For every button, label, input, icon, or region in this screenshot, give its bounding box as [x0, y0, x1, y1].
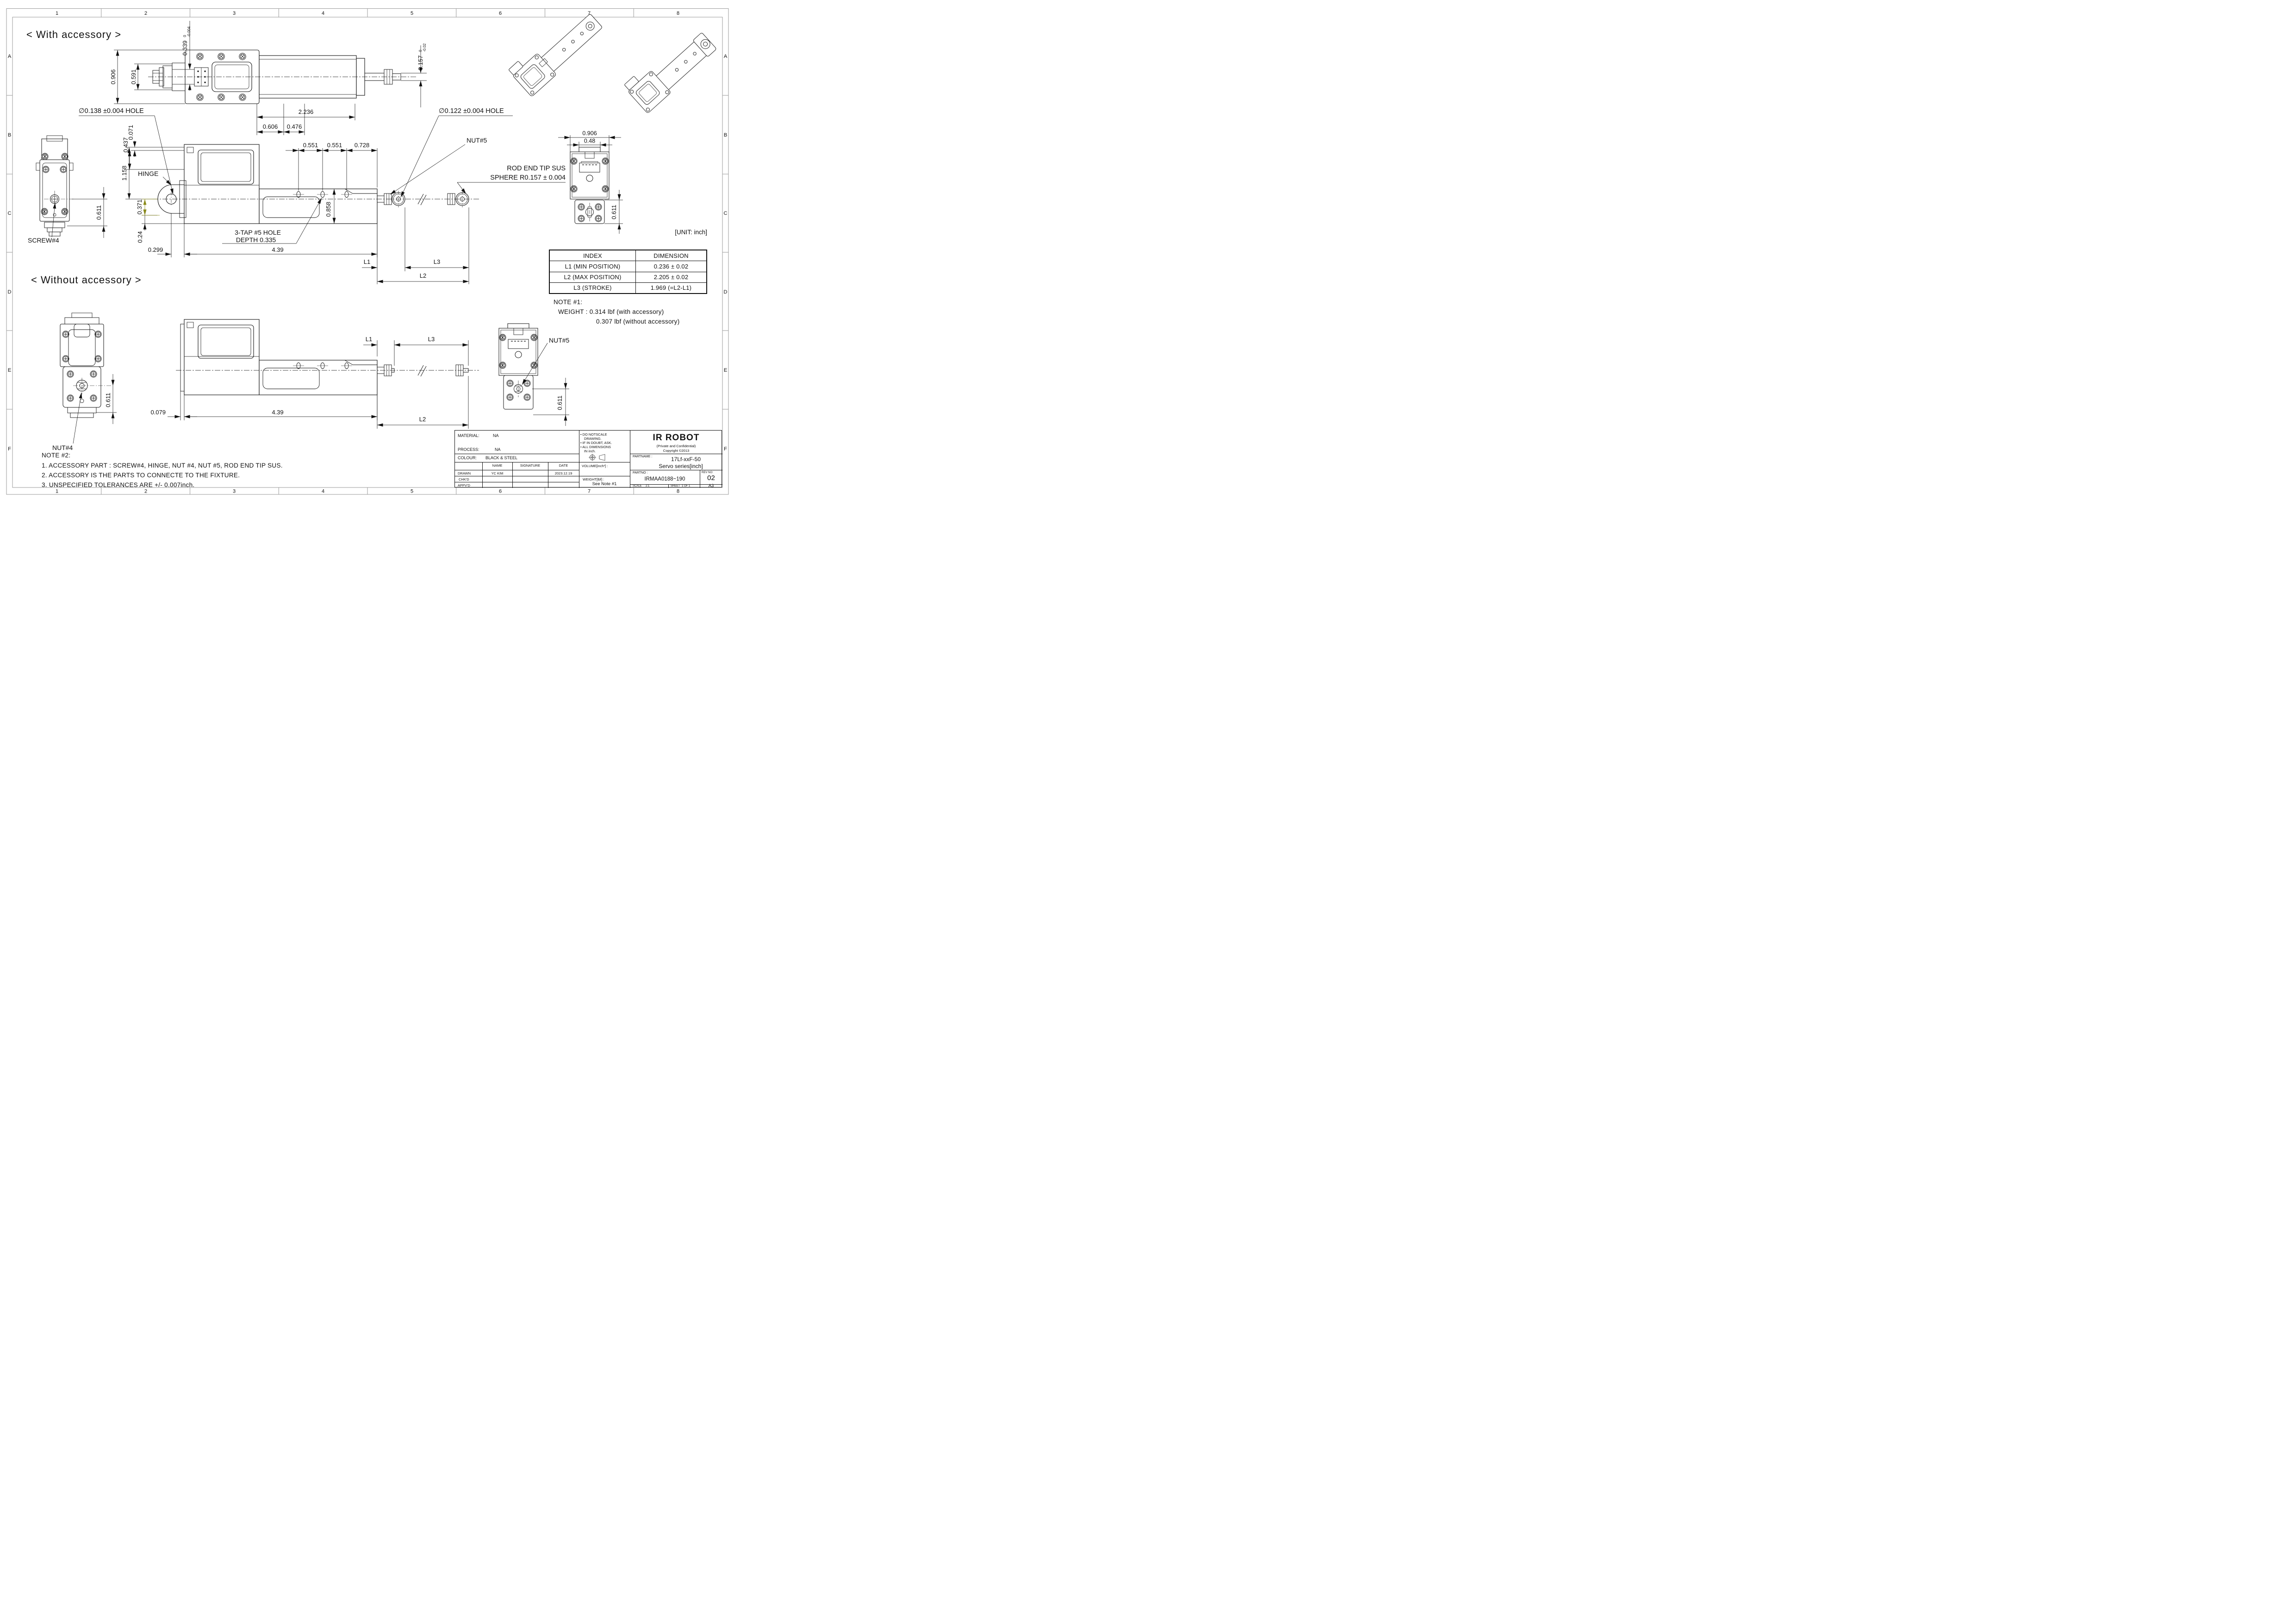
- zone-row-left-C: C: [8, 211, 12, 216]
- zone-col-top-3: 3: [233, 11, 236, 16]
- zone-row-right-A: A: [724, 54, 728, 59]
- dim-0606: 0.606: [263, 123, 278, 130]
- side-view-with-accessory: [153, 144, 479, 224]
- label-rodend-line1: ROD END TIP SUS: [507, 165, 566, 172]
- zone-row-right-D: D: [724, 289, 728, 295]
- note-line: • DO NOTSCALE: [580, 432, 628, 437]
- dim-0339: 0.339: [181, 40, 188, 56]
- index-l3-label: L3 (STROKE): [550, 282, 636, 293]
- copyright-note: Copyright ©2013: [630, 449, 722, 453]
- title-block-notes: • DO NOTSCALE DRAWING. • IF IN DOUBT, AS…: [580, 432, 628, 453]
- label-hole-0138: ∅0.138 ±0.004 HOLE: [79, 107, 144, 115]
- drawn-date: 2023.12.19: [548, 471, 579, 475]
- right-end-view-with-accessory: [570, 147, 609, 224]
- zone-col-bot-3: 3: [233, 489, 236, 494]
- right-end-view-without-accessory: [499, 324, 538, 409]
- zone-col-top-4: 4: [322, 11, 324, 16]
- drawn-label: DRAWN: [458, 471, 471, 475]
- dim-0728: 0.728: [355, 142, 370, 149]
- dim-0157-tol: 0.157 0 -0.02: [417, 43, 427, 70]
- dim-0071: 0.071: [127, 125, 134, 140]
- section-title-with-accessory: < With accessory >: [26, 29, 121, 41]
- drawn-name: YC KIM: [482, 471, 512, 475]
- dim-0157: 0.157: [417, 55, 424, 70]
- dim-0611-left-view: 0.611: [95, 205, 102, 220]
- sheet-label: SHEET: [671, 485, 680, 487]
- partno-label: PARTNO :: [633, 471, 647, 475]
- note-line: • ALL DIMENSIONS: [580, 445, 628, 449]
- dim-L1-top: L1: [364, 258, 370, 265]
- note2-title: NOTE #2:: [42, 452, 70, 459]
- zone-col-bot-7: 7: [588, 489, 591, 494]
- left-end-view-with-accessory: [36, 136, 74, 236]
- partno-value: IRMAA0188~190: [630, 476, 700, 482]
- divider: [455, 482, 579, 482]
- divider: [630, 470, 722, 470]
- note2-line2: 2. ACCESSORY IS THE PARTS TO CONNECTE TO…: [42, 472, 240, 479]
- dim-0611-rear: 0.611: [105, 393, 112, 407]
- note-line: • IF IN DOUBT, ASK.: [580, 441, 628, 445]
- zone-col-bot-1: 1: [56, 489, 58, 494]
- note2-line3: 3. UNSPECIFIED TOLERANCES ARE +/- 0.007i…: [42, 481, 194, 488]
- zone-row-left-A: A: [8, 54, 12, 59]
- rear-view-without-accessory: [60, 313, 111, 418]
- partname-value-line2: Servo series[inch]: [639, 463, 722, 469]
- note1-title: NOTE #1:: [554, 299, 582, 306]
- right-end-view-dim-labels: 0.906 0.48 0.611: [582, 130, 617, 219]
- scale-value: 2:1: [646, 485, 649, 487]
- sheet-value: 1 OF 1: [682, 485, 690, 487]
- weight-value: See Note #1: [579, 481, 630, 487]
- divider: [668, 484, 669, 488]
- section-title-without-accessory: < Without accessory >: [31, 274, 142, 286]
- partname-value-line1: 17Lf-xxF-50: [649, 456, 722, 462]
- scale-label: SCALE: [633, 485, 642, 487]
- side-view-dim-labels: ∅0.138 ±0.004 HOLE 2.236 0.606 0.476 0.4…: [79, 107, 566, 279]
- note1-line1: WEIGHT : 0.314 lbf (with accessory): [558, 308, 664, 315]
- dim-0906-end: 0.906: [582, 130, 597, 137]
- label-nut4: NUT#4: [52, 444, 73, 451]
- process-label: PROCESS:: [458, 447, 479, 452]
- zone-col-bot-8: 8: [677, 489, 679, 494]
- side-view-without-labels: L1 L3 L2 0.079 4.39: [150, 336, 435, 423]
- volume-label: VOLUME[inch³] :: [582, 464, 608, 468]
- label-screw4: SCREW#4: [28, 237, 59, 244]
- sheet-size: A3: [700, 483, 722, 488]
- zone-row-right-C: C: [724, 211, 728, 216]
- side-view-without-accessory: [176, 319, 479, 395]
- revno-value: 02: [700, 474, 722, 482]
- dim-0079: 0.079: [150, 409, 166, 416]
- zone-row-left-B: B: [8, 132, 11, 138]
- dim-0611-end: 0.611: [610, 205, 617, 219]
- dim-0611-end-bottom: 0.611: [556, 395, 563, 410]
- dim-439-bot: 4.39: [272, 409, 283, 416]
- dim-0339-tol-lo: -0.004: [187, 26, 191, 37]
- zone-row-right-E: E: [724, 368, 727, 373]
- confidential-note: (Private and Confidential): [630, 444, 722, 448]
- dim-048-end: 0.48: [584, 138, 595, 144]
- zone-col-top-1: 1: [56, 11, 58, 16]
- dim-0157-tol-hi: 0: [418, 50, 423, 52]
- zone-row-left-F: F: [8, 446, 11, 452]
- dim-0591: 0.591: [130, 69, 137, 85]
- dim-L3-bot: L3: [428, 336, 435, 343]
- process-value: NA: [495, 447, 501, 452]
- index-l3-value: 1.969 (=L2-L1): [636, 282, 707, 293]
- label-nut5-top: NUT#5: [467, 137, 487, 144]
- zone-col-top-8: 8: [677, 11, 679, 16]
- note-line: IN inch.: [580, 449, 628, 453]
- divider: [579, 431, 579, 488]
- table-row: L1 (MIN POSITION) 0.236 ± 0.02: [550, 261, 707, 272]
- dim-0476: 0.476: [287, 123, 302, 130]
- zone-col-top-2: 2: [144, 11, 147, 16]
- label-tap-line1: 3-TAP #5 HOLE: [235, 229, 281, 236]
- dim-0906-top: 0.906: [110, 69, 117, 85]
- table-row: L2 (MAX POSITION) 2.205 ± 0.02: [550, 272, 707, 282]
- rear-view-dims: [73, 374, 117, 443]
- divider: [455, 462, 630, 462]
- zone-col-bot-5: 5: [411, 489, 413, 494]
- divider: [630, 454, 722, 454]
- divider: [455, 454, 579, 454]
- zone-col-bot-6: 6: [499, 489, 502, 494]
- zone-col-top-5: 5: [411, 11, 413, 16]
- note1-line2: 0.307 lbf (without accessory): [596, 318, 680, 325]
- dim-0371: 0.371: [136, 200, 143, 215]
- dim-L3-top: L3: [434, 258, 440, 265]
- index-l1-value: 0.236 ± 0.02: [636, 261, 707, 272]
- plan-view-with-accessory: [148, 50, 417, 104]
- colour-label: COLOUR:: [458, 456, 477, 460]
- zone-row-left-E: E: [8, 368, 11, 373]
- divider: [455, 470, 579, 470]
- material-label: MATERIAL:: [458, 433, 479, 438]
- dim-0858: 0.858: [325, 202, 332, 217]
- dim-2236: 2.236: [299, 108, 314, 115]
- index-l2-label: L2 (MAX POSITION): [550, 272, 636, 282]
- zone-row-right-B: B: [724, 132, 727, 138]
- dim-024: 0.24: [137, 231, 143, 243]
- date-header: DATE: [548, 463, 579, 468]
- chkd-label: CHK'D: [459, 477, 469, 481]
- label-tap-line2: DEPTH 0.335: [236, 236, 276, 244]
- label-nut5-bottom: NUT#5: [549, 337, 570, 344]
- isometric-view-2: [623, 23, 718, 113]
- index-l1-label: L1 (MIN POSITION): [550, 261, 636, 272]
- zone-row-right-F: F: [724, 446, 727, 452]
- dim-0299: 0.299: [148, 246, 163, 253]
- dim-L2-bot: L2: [419, 416, 426, 423]
- dim-439-top: 4.39: [272, 246, 283, 253]
- engineering-drawing-sheet: { "frame": { "cols": ["1","2","3","4","5…: [0, 0, 735, 520]
- unit-note: [UNIT: inch]: [639, 229, 707, 236]
- label-hinge: HINGE: [138, 170, 158, 177]
- divider: [455, 476, 630, 476]
- dim-1158: 1.158: [121, 166, 128, 181]
- colour-value: BLACK & STEEL: [485, 456, 517, 460]
- dim-L2-top: L2: [420, 272, 426, 279]
- name-header: NAME: [482, 463, 512, 468]
- index-l2-value: 2.205 ± 0.02: [636, 272, 707, 282]
- signature-header: SIGNATURE: [512, 463, 548, 468]
- label-hole-0122: ∅0.122 ±0.004 HOLE: [439, 107, 504, 115]
- zone-col-bot-4: 4: [322, 489, 324, 494]
- material-value: NA: [493, 433, 499, 438]
- dim-0551-b: 0.551: [327, 142, 342, 149]
- index-table-header-dimension: DIMENSION: [636, 250, 707, 261]
- third-angle-projection-icon: [588, 454, 607, 461]
- dim-0551-a: 0.551: [303, 142, 318, 149]
- dim-L1-bot: L1: [366, 336, 372, 343]
- side-view-dimensions: [79, 104, 566, 284]
- label-rodend-line2: SPHERE R0.157 ± 0.004: [490, 174, 566, 181]
- index-table-header-index: INDEX: [550, 250, 636, 261]
- weight-label: WEIGHT[lbf] :: [583, 477, 604, 481]
- dim-0371-olive: [142, 199, 160, 215]
- isometric-view-1: [508, 4, 605, 97]
- zone-col-bot-2: 2: [144, 489, 147, 494]
- note-line: DRAWING.: [580, 437, 628, 441]
- table-row: L3 (STROKE) 1.969 (=L2-L1): [550, 282, 707, 293]
- zone-row-left-D: D: [8, 289, 12, 295]
- dim-0157-tol-lo: -0.02: [423, 43, 427, 52]
- note2-line1: 1. ACCESSORY PART : SCREW#4, HINGE, NUT …: [42, 462, 283, 469]
- appvd-label: APPV'D: [458, 483, 470, 487]
- index-dimension-table: INDEX DIMENSION L1 (MIN POSITION) 0.236 …: [549, 250, 707, 294]
- company-logo-text: IR ROBOT: [630, 433, 722, 443]
- zone-col-top-6: 6: [499, 11, 502, 16]
- dim-0339-tol-hi: 0: [183, 35, 187, 37]
